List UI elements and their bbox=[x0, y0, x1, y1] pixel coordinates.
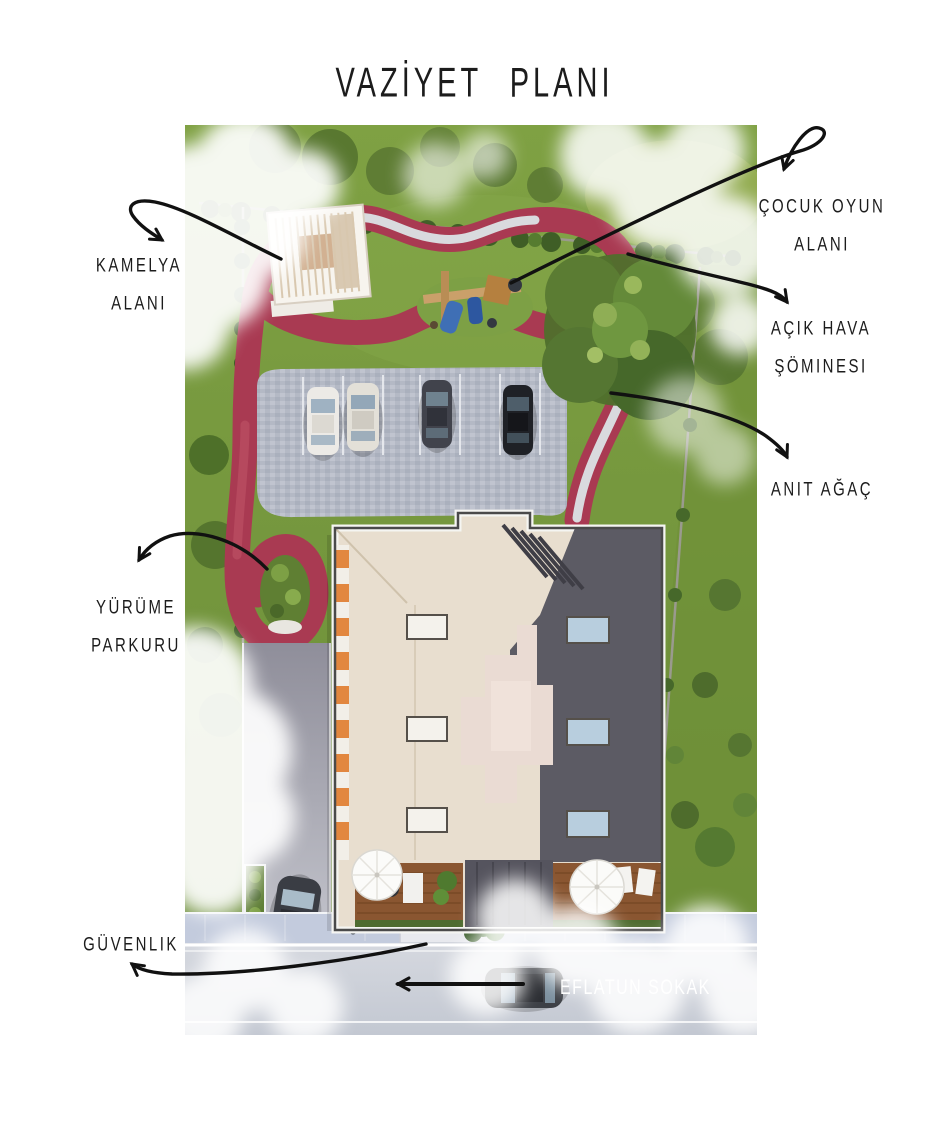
page-title: VAZİYET PLANI bbox=[0, 60, 949, 108]
apartment-building bbox=[327, 513, 663, 931]
street-name-label: EFLATUN SOKAK bbox=[560, 977, 710, 1000]
annotation-label-cocuk-oyun-alani: ÇOCUK OYUN ALANI bbox=[732, 188, 912, 263]
annotation-label-anit-agac: ANIT AĞAÇ bbox=[732, 471, 912, 509]
site-plan-page: VAZİYET PLANI bbox=[0, 0, 949, 1126]
annotation-label-acik-hava-sominesi: AÇIK HAVA ŞÖMINESI bbox=[731, 310, 911, 385]
annotation-label-yurume-parkuru: YÜRÜME PARKURU bbox=[46, 589, 226, 664]
parking-lot bbox=[257, 367, 567, 517]
annotation-label-kamelya-alani: KAMELYA ALANI bbox=[59, 247, 219, 322]
site-plan-rendering bbox=[185, 125, 757, 1035]
annotation-label-guvenlik: GÜVENLIK bbox=[41, 926, 221, 964]
